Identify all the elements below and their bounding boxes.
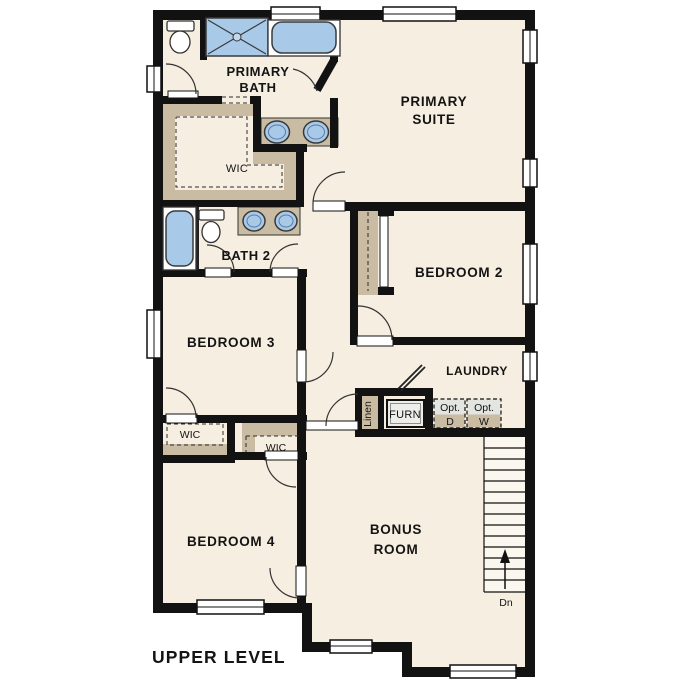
label-opt-washer-2: W (479, 416, 489, 428)
floor-plan-page: PRIMARY BATH PRIMARY SUITE WIC BATH 2 BE… (0, 0, 687, 687)
label-laundry: LAUNDRY (446, 364, 508, 378)
label-bonus-room-1: BONUS (370, 522, 422, 537)
page-title: UPPER LEVEL (152, 647, 286, 667)
label-wic-bedroom-3: WIC (180, 429, 201, 441)
closet-slider-door (380, 216, 388, 287)
label-opt-dryer-1: Opt. (440, 402, 460, 414)
label-bedroom-3: BEDROOM 3 (187, 335, 275, 350)
floor-plan: PRIMARY BATH PRIMARY SUITE WIC BATH 2 BE… (0, 0, 687, 687)
label-bonus-room-2: ROOM (374, 542, 419, 557)
bath2-tub (163, 207, 196, 270)
label-furnace: FURN (389, 409, 421, 421)
label-primary-suite-2: SUITE (412, 112, 455, 127)
cased-opening (222, 96, 250, 104)
label-opt-dryer-2: D (446, 416, 454, 428)
label-primary-suite-1: PRIMARY (401, 94, 468, 109)
label-bedroom-4: BEDROOM 4 (187, 534, 275, 549)
label-primary-bath-2: BATH (239, 80, 276, 95)
primary-shower (206, 18, 268, 56)
label-opt-washer-1: Opt. (474, 402, 494, 414)
label-bath-2: BATH 2 (222, 248, 271, 263)
primary-tub (268, 20, 340, 56)
label-wic-bedroom-4: WIC (266, 442, 287, 454)
label-linen: Linen (362, 401, 374, 427)
label-stairs-down: Dn (499, 597, 513, 609)
label-bedroom-2: BEDROOM 2 (415, 265, 503, 280)
label-primary-wic: WIC (226, 163, 248, 175)
label-primary-bath-1: PRIMARY (227, 64, 290, 79)
